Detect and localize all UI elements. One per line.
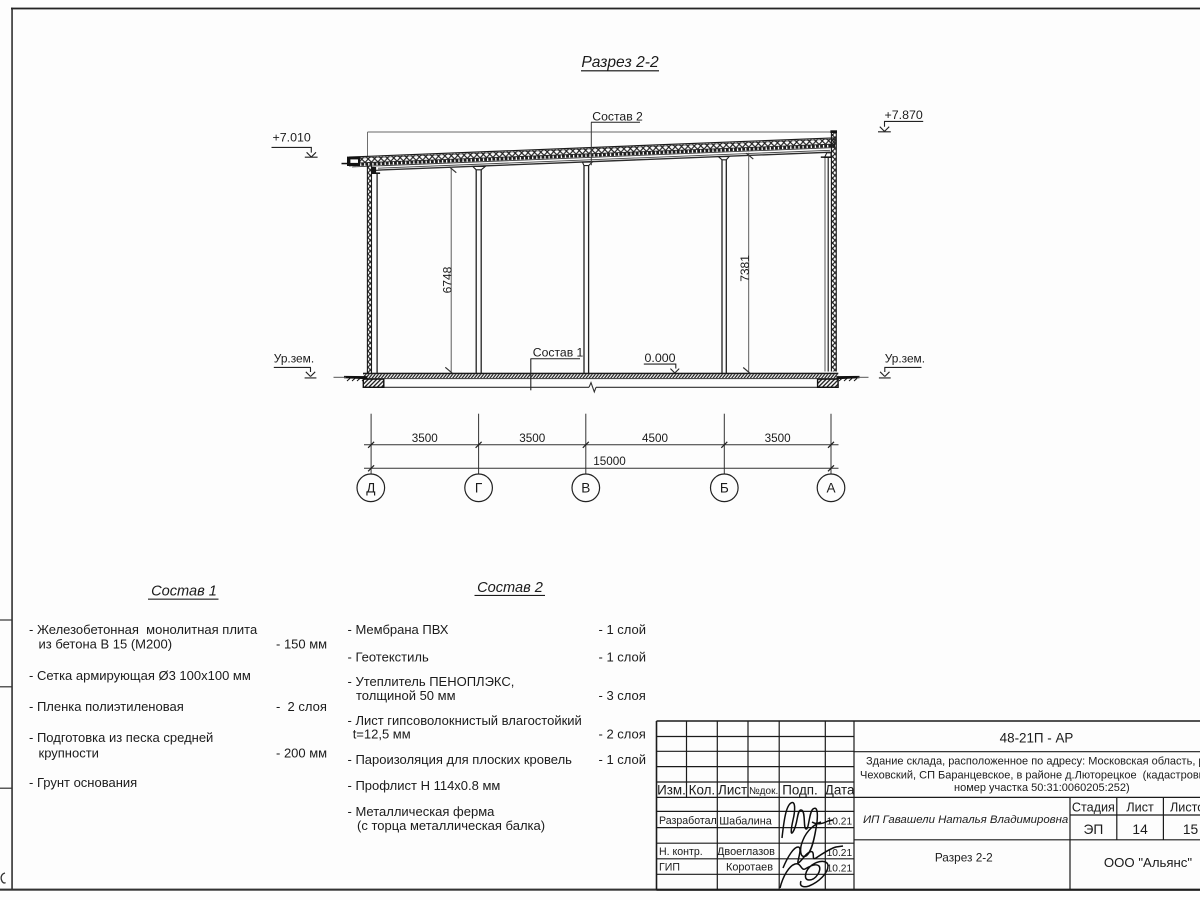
svg-text:- Мембрана ПВХ: - Мембрана ПВХ: [348, 622, 449, 637]
svg-text:из бетона В 15 (М200): из бетона В 15 (М200): [39, 636, 173, 651]
svg-text:Изм.: Изм.: [657, 783, 686, 798]
svg-text:- Утеплитель ПЕНОПЛЭКС,: - Утеплитель ПЕНОПЛЭКС,: [348, 674, 515, 689]
svg-text:+7.010: +7.010: [273, 131, 311, 145]
svg-text:15: 15: [1183, 822, 1199, 837]
svg-text:Г: Г: [475, 481, 483, 496]
svg-text:10.21: 10.21: [827, 863, 853, 874]
svg-text:10.21: 10.21: [827, 817, 853, 828]
svg-text:t=12,5 мм: t=12,5 мм: [353, 726, 411, 741]
svg-text:ГИП: ГИП: [659, 861, 680, 873]
svg-text:Подп.: Подп.: [782, 783, 818, 798]
svg-text:- 1 слой: - 1 слой: [599, 649, 647, 664]
svg-text:Разрез 2-2: Разрез 2-2: [935, 851, 993, 865]
svg-text:- Пароизоляция для плоских кро: - Пароизоляция для плоских кровель: [348, 752, 573, 767]
svg-text:- 1 слой: - 1 слой: [599, 752, 647, 767]
svg-text:14: 14: [1132, 822, 1148, 837]
svg-text:- Грунт основания: - Грунт основания: [29, 775, 137, 790]
svg-text:3500: 3500: [765, 432, 792, 445]
svg-text:крупности: крупности: [39, 745, 99, 760]
svg-text:Н. контр.: Н. контр.: [659, 846, 703, 858]
svg-text:4500: 4500: [642, 432, 669, 445]
svg-text:номер участка 50:31:0060205:25: номер участка 50:31:0060205:252): [954, 782, 1130, 794]
svg-text:Лист: Лист: [718, 783, 747, 798]
svg-text:Коротаев: Коротаев: [726, 862, 773, 874]
svg-text:Стадия: Стадия: [1072, 800, 1115, 814]
svg-text:+7.870: +7.870: [885, 108, 923, 122]
svg-text:Чеховский, СП Баранцевское, в: Чеховский, СП Баранцевское, в районе д.Л…: [860, 770, 1200, 782]
svg-text:Листов: Листов: [1170, 800, 1200, 814]
svg-text:№док.: №док.: [749, 786, 778, 797]
svg-text:Двоеглазов: Двоеглазов: [717, 846, 775, 858]
svg-text:48-21П - АР: 48-21П - АР: [1000, 730, 1074, 745]
svg-text:- 150 мм: - 150 мм: [276, 636, 327, 651]
svg-text:3500: 3500: [519, 432, 546, 445]
svg-text:- 200 мм: - 200 мм: [276, 745, 327, 760]
svg-text:А: А: [826, 481, 836, 496]
svg-text:Состав 1: Состав 1: [533, 345, 584, 359]
svg-text:Шабалина: Шабалина: [719, 816, 773, 828]
svg-text:7381: 7381: [738, 255, 752, 282]
svg-text:- Профлист Н 114х0.8 мм: - Профлист Н 114х0.8 мм: [348, 778, 501, 793]
svg-text:0.000: 0.000: [645, 351, 676, 365]
svg-text:Разработал: Разработал: [659, 815, 717, 827]
svg-text:Состав 2: Состав 2: [477, 580, 543, 596]
svg-text:Б: Б: [720, 481, 729, 496]
svg-text:- Железобетонная монолитная п: - Железобетонная монолитная плита: [29, 622, 258, 637]
svg-text:- Сетка армирующая Ø3 100х100: - Сетка армирующая Ø3 100х100 мм: [29, 668, 251, 683]
svg-text:В: В: [581, 481, 590, 496]
svg-text:Состав 1: Состав 1: [151, 584, 217, 600]
svg-text:Разрез 2-2: Разрез 2-2: [581, 54, 659, 71]
svg-text:3500: 3500: [412, 432, 439, 445]
svg-text:Ур.зем.: Ур.зем.: [274, 351, 314, 365]
svg-text:Ур.зем.: Ур.зем.: [885, 351, 925, 365]
svg-text:6748: 6748: [440, 266, 454, 293]
svg-text:(с торца металлическая балка): (с торца металлическая балка): [357, 818, 545, 833]
svg-text:Состав 2: Состав 2: [592, 109, 643, 123]
svg-text:- Геотекстиль: - Геотекстиль: [348, 649, 429, 664]
svg-text:- 2 слоя: - 2 слоя: [599, 726, 646, 741]
svg-text:- Пленка полиэтиленовая: - Пленка полиэтиленовая: [29, 699, 184, 714]
svg-text:15000: 15000: [593, 455, 626, 468]
svg-text:Д: Д: [366, 481, 375, 496]
svg-text:Дата: Дата: [825, 783, 855, 798]
svg-text:- Подготовка из песка средней: - Подготовка из песка средней: [29, 730, 213, 745]
svg-text:Здание склада, расположенное п: Здание склада, расположенное по адресу: …: [866, 756, 1200, 768]
svg-text:- 1 слой: - 1 слой: [599, 622, 647, 637]
svg-text:Лист: Лист: [1126, 800, 1154, 814]
svg-text:ООО "Альянс": ООО "Альянс": [1104, 855, 1192, 870]
svg-text:ЭП: ЭП: [1083, 822, 1103, 837]
svg-text:- 2 слоя: - 2 слоя: [276, 699, 327, 714]
svg-text:Кол.: Кол.: [689, 783, 716, 798]
svg-text:толщиной 50 мм: толщиной 50 мм: [356, 688, 456, 703]
svg-text:ИП Гавашели Наталья Владимиров: ИП Гавашели Наталья Владимировна: [863, 814, 1068, 826]
svg-text:- 3 слоя: - 3 слоя: [599, 688, 646, 703]
